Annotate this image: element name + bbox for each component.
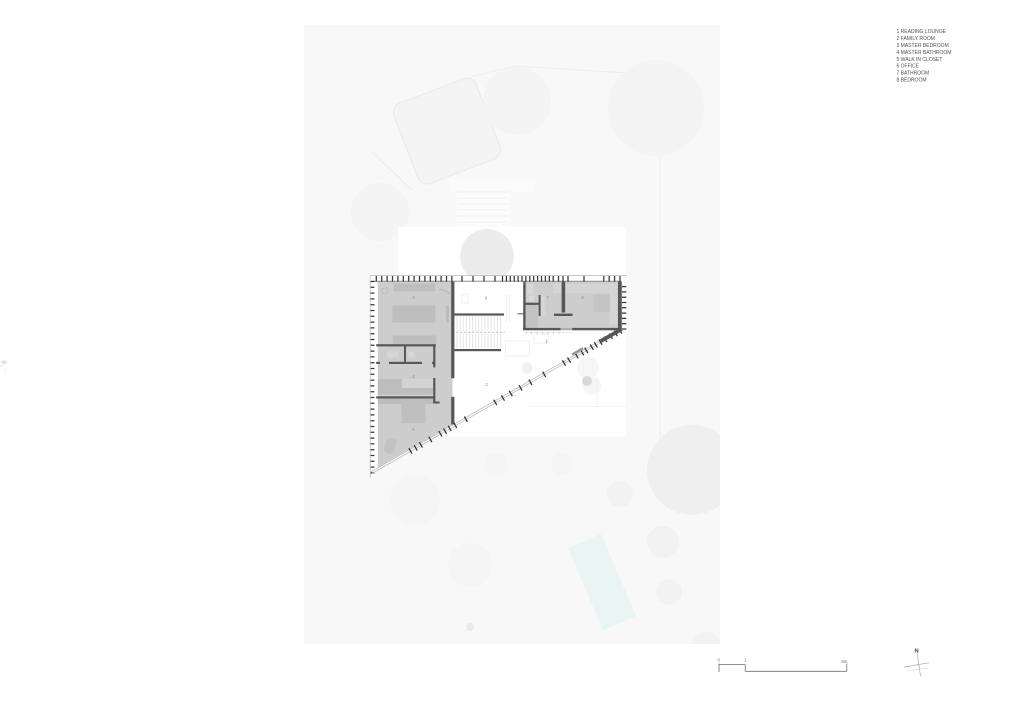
svg-text:3: 3 — [412, 295, 415, 300]
svg-text:0: 0 — [718, 658, 721, 663]
svg-text:4 MASTER BATHROOM: 4 MASTER BATHROOM — [897, 50, 952, 56]
svg-text:3 MASTER BEDROOM: 3 MASTER BEDROOM — [897, 43, 949, 49]
svg-text:5 WALK IN CLOSET: 5 WALK IN CLOSET — [897, 57, 943, 63]
svg-text:8 BEDROOM: 8 BEDROOM — [897, 78, 927, 84]
svg-text:7: 7 — [546, 295, 549, 300]
svg-text:5m: 5m — [842, 659, 848, 664]
svg-text:1: 1 — [744, 658, 747, 663]
svg-text:2: 2 — [485, 382, 488, 387]
svg-text:7 BATHROOM: 7 BATHROOM — [897, 71, 930, 77]
svg-text:6 OFFICE: 6 OFFICE — [897, 64, 920, 70]
svg-text:N: N — [915, 649, 919, 655]
svg-text:1 READING LOUNGE: 1 READING LOUNGE — [897, 29, 947, 35]
svg-text:4: 4 — [412, 374, 415, 379]
svg-text:5: 5 — [412, 427, 415, 432]
svg-text:1: 1 — [545, 339, 548, 344]
svg-text:8: 8 — [581, 295, 584, 300]
svg-text:6: 6 — [485, 296, 488, 301]
svg-text:2 FAMILY ROOM: 2 FAMILY ROOM — [897, 36, 935, 42]
